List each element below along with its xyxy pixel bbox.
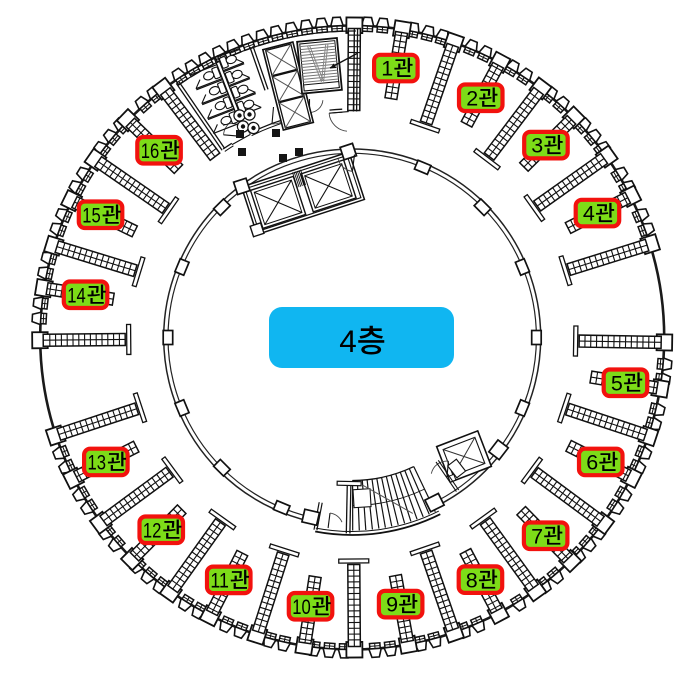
svg-text:6: 6 — [586, 451, 598, 475]
svg-text:14: 14 — [67, 283, 86, 307]
svg-text:16: 16 — [141, 139, 160, 163]
svg-text:4: 4 — [339, 323, 357, 359]
svg-text:12: 12 — [143, 518, 162, 542]
svg-text:9: 9 — [386, 593, 398, 617]
svg-text:2: 2 — [466, 86, 478, 110]
svg-text:15: 15 — [82, 203, 101, 227]
svg-text:4: 4 — [583, 202, 595, 226]
svg-text:8: 8 — [466, 568, 478, 592]
svg-text:10: 10 — [292, 595, 311, 619]
svg-text:7: 7 — [531, 524, 543, 548]
svg-text:5: 5 — [611, 371, 623, 395]
svg-text:11: 11 — [210, 569, 229, 593]
svg-text:3: 3 — [531, 134, 543, 158]
svg-text:13: 13 — [88, 451, 107, 475]
svg-text:1: 1 — [381, 57, 393, 81]
